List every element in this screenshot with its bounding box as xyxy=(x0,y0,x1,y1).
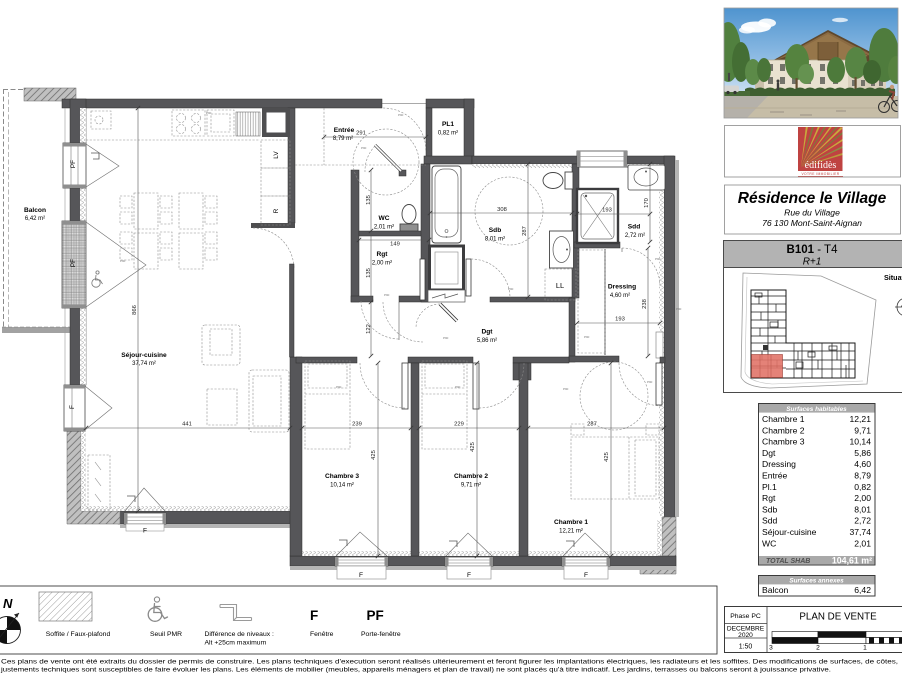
svg-text:F: F xyxy=(359,572,363,579)
svg-text:149: 149 xyxy=(390,242,400,248)
svg-text:2,00: 2,00 xyxy=(854,493,871,503)
svg-text:N: N xyxy=(3,596,13,611)
svg-text:Dgt: Dgt xyxy=(482,329,494,336)
svg-text:P90: P90 xyxy=(676,307,682,311)
svg-text:170: 170 xyxy=(644,198,650,208)
svg-text:291: 291 xyxy=(356,131,366,137)
svg-text:2,01 m²: 2,01 m² xyxy=(374,225,394,231)
svg-text:LL: LL xyxy=(556,281,564,290)
svg-text:WC: WC xyxy=(762,538,776,548)
svg-text:238: 238 xyxy=(642,299,648,309)
svg-text:8,79 m²: 8,79 m² xyxy=(333,136,353,142)
svg-text:Séjour-cuisine: Séjour-cuisine xyxy=(762,527,817,537)
svg-text:5,86: 5,86 xyxy=(854,448,871,458)
svg-text:Fenêtre: Fenêtre xyxy=(310,631,334,638)
svg-text:édifidès: édifidès xyxy=(805,160,837,171)
svg-text:TOTAL SHAB: TOTAL SHAB xyxy=(766,558,810,565)
svg-text:3: 3 xyxy=(769,645,773,652)
svg-text:8,79: 8,79 xyxy=(854,471,871,481)
svg-text:PF: PF xyxy=(70,160,77,168)
svg-text:193: 193 xyxy=(602,208,612,214)
svg-text:10,14 m²: 10,14 m² xyxy=(330,483,354,489)
svg-text:Sdb: Sdb xyxy=(489,227,501,234)
svg-text:9,71 m²: 9,71 m² xyxy=(461,483,481,489)
svg-text:104,61 m²: 104,61 m² xyxy=(832,555,872,565)
svg-text:Rue du Village: Rue du Village xyxy=(784,208,840,218)
svg-text:Dgt: Dgt xyxy=(762,448,776,458)
svg-text:PF: PF xyxy=(367,608,384,623)
svg-text:37,74 m²: 37,74 m² xyxy=(132,361,156,367)
svg-text:P90: P90 xyxy=(647,380,653,384)
svg-text:287: 287 xyxy=(522,226,528,236)
svg-text:135: 135 xyxy=(366,195,372,205)
svg-text:239: 239 xyxy=(352,422,362,428)
svg-text:2020: 2020 xyxy=(738,632,753,639)
svg-text:8,01 m²: 8,01 m² xyxy=(485,237,505,243)
svg-text:Phase PC: Phase PC xyxy=(730,613,761,620)
svg-text:P90: P90 xyxy=(361,146,367,150)
svg-text:425: 425 xyxy=(604,452,610,462)
svg-text:Dressing: Dressing xyxy=(762,459,796,469)
svg-text:1: 1 xyxy=(863,645,867,652)
svg-text:Sdb: Sdb xyxy=(762,504,778,514)
svg-text:9,71: 9,71 xyxy=(854,425,871,435)
svg-text:LV: LV xyxy=(273,151,280,159)
svg-text:Sdd: Sdd xyxy=(628,224,640,231)
svg-text:441: 441 xyxy=(182,422,192,428)
svg-text:PLAN DE VENTE: PLAN DE VENTE xyxy=(799,612,877,623)
svg-text:Surfaces annexes: Surfaces annexes xyxy=(789,578,844,585)
svg-text:5,86 m²: 5,86 m² xyxy=(477,338,497,344)
svg-text:PF: PF xyxy=(70,259,77,267)
svg-text:0,82 m²: 0,82 m² xyxy=(438,131,458,137)
svg-text:PL1: PL1 xyxy=(442,121,454,128)
svg-text:R: R xyxy=(273,208,280,213)
svg-text:Soffite / Faux-plafond: Soffite / Faux-plafond xyxy=(46,631,111,638)
svg-text:229: 229 xyxy=(454,422,464,428)
svg-text:Sdd: Sdd xyxy=(762,516,778,526)
svg-text:Situation: Situation xyxy=(884,273,902,282)
svg-text:308: 308 xyxy=(497,207,507,213)
svg-text:Chambre 3: Chambre 3 xyxy=(325,473,359,480)
svg-text:Chambre 2: Chambre 2 xyxy=(454,473,488,480)
svg-text:P90: P90 xyxy=(455,385,461,389)
svg-text:R+1: R+1 xyxy=(803,257,822,268)
svg-text:425: 425 xyxy=(371,450,377,460)
svg-text:122: 122 xyxy=(366,324,372,334)
svg-text:Entrée: Entrée xyxy=(334,127,355,134)
svg-text:287: 287 xyxy=(587,422,597,428)
svg-text:12,21 m²: 12,21 m² xyxy=(559,529,583,535)
svg-text:F: F xyxy=(310,608,318,623)
svg-text:4,60 m²: 4,60 m² xyxy=(610,293,630,299)
svg-text:12,21: 12,21 xyxy=(849,414,871,424)
svg-text:Séjour-cuisine: Séjour-cuisine xyxy=(121,352,167,359)
svg-text:Seuil PMR: Seuil PMR xyxy=(150,631,182,638)
svg-text:justements techniques sont sus: justements techniques sont susceptibles … xyxy=(0,668,831,674)
svg-text:VOTRE IMMOBILIER: VOTRE IMMOBILIER xyxy=(801,172,839,176)
svg-text:2,00 m²: 2,00 m² xyxy=(372,261,392,267)
svg-text:Alt +25cm maximum: Alt +25cm maximum xyxy=(205,640,267,647)
svg-text:Balcon: Balcon xyxy=(762,585,788,595)
svg-text:Rgt: Rgt xyxy=(377,251,389,258)
svg-text:F: F xyxy=(143,528,147,535)
svg-text:P90: P90 xyxy=(443,336,449,340)
svg-text:P90: P90 xyxy=(398,113,404,117)
svg-text:135: 135 xyxy=(366,268,372,278)
svg-text:37,74: 37,74 xyxy=(849,527,871,537)
svg-text:76 130 Mont-Saint-Aignan: 76 130 Mont-Saint-Aignan xyxy=(762,218,862,228)
svg-text:2,72 m²: 2,72 m² xyxy=(625,233,645,239)
svg-text:Entrée: Entrée xyxy=(762,471,788,481)
svg-text:Balcon: Balcon xyxy=(24,207,46,214)
svg-text:193: 193 xyxy=(615,317,625,323)
svg-text:Chambre 2: Chambre 2 xyxy=(762,425,805,435)
svg-text:B101 - T4: B101 - T4 xyxy=(787,244,839,256)
svg-text:P90: P90 xyxy=(336,385,342,389)
svg-text:Résidence le Village: Résidence le Village xyxy=(738,190,887,207)
svg-text:10,14: 10,14 xyxy=(849,437,871,447)
svg-text:P90: P90 xyxy=(655,257,661,261)
svg-text:F: F xyxy=(584,572,588,579)
svg-text:Différence de niveaux :: Différence de niveaux : xyxy=(205,631,275,638)
svg-text:Porte-fenêtre: Porte-fenêtre xyxy=(361,631,401,638)
svg-text:8,01: 8,01 xyxy=(854,504,871,514)
svg-text:2,72: 2,72 xyxy=(854,516,871,526)
svg-text:Ces plans de vente ont été ext: Ces plans de vente ont été extraits du d… xyxy=(1,660,898,666)
svg-text:6,42 m²: 6,42 m² xyxy=(25,216,45,222)
svg-text:WC: WC xyxy=(379,215,390,222)
svg-text:P90: P90 xyxy=(563,387,569,391)
svg-text:F: F xyxy=(467,572,471,579)
svg-text:866: 866 xyxy=(132,305,138,315)
svg-text:Dressing: Dressing xyxy=(608,284,636,291)
svg-text:Surfaces habitables: Surfaces habitables xyxy=(786,406,847,413)
svg-text:F: F xyxy=(69,405,76,409)
svg-text:Chambre 1: Chambre 1 xyxy=(554,519,588,526)
svg-text:6,42: 6,42 xyxy=(854,585,871,595)
svg-text:P90: P90 xyxy=(584,335,590,339)
svg-text:Chambre 1: Chambre 1 xyxy=(762,414,805,424)
svg-text:1:50: 1:50 xyxy=(739,644,753,651)
svg-text:2: 2 xyxy=(816,645,820,652)
svg-text:P90: P90 xyxy=(120,259,126,263)
svg-text:0,82: 0,82 xyxy=(854,482,871,492)
svg-text:Rgt: Rgt xyxy=(762,493,776,503)
svg-text:P90: P90 xyxy=(206,111,212,115)
svg-text:P90: P90 xyxy=(508,287,514,291)
svg-text:2,01: 2,01 xyxy=(854,538,871,548)
svg-text:P90: P90 xyxy=(384,293,390,297)
svg-text:Pl.1: Pl.1 xyxy=(762,482,777,492)
svg-text:4,60: 4,60 xyxy=(854,459,871,469)
svg-text:425: 425 xyxy=(470,442,476,452)
svg-text:Chambre 3: Chambre 3 xyxy=(762,437,805,447)
